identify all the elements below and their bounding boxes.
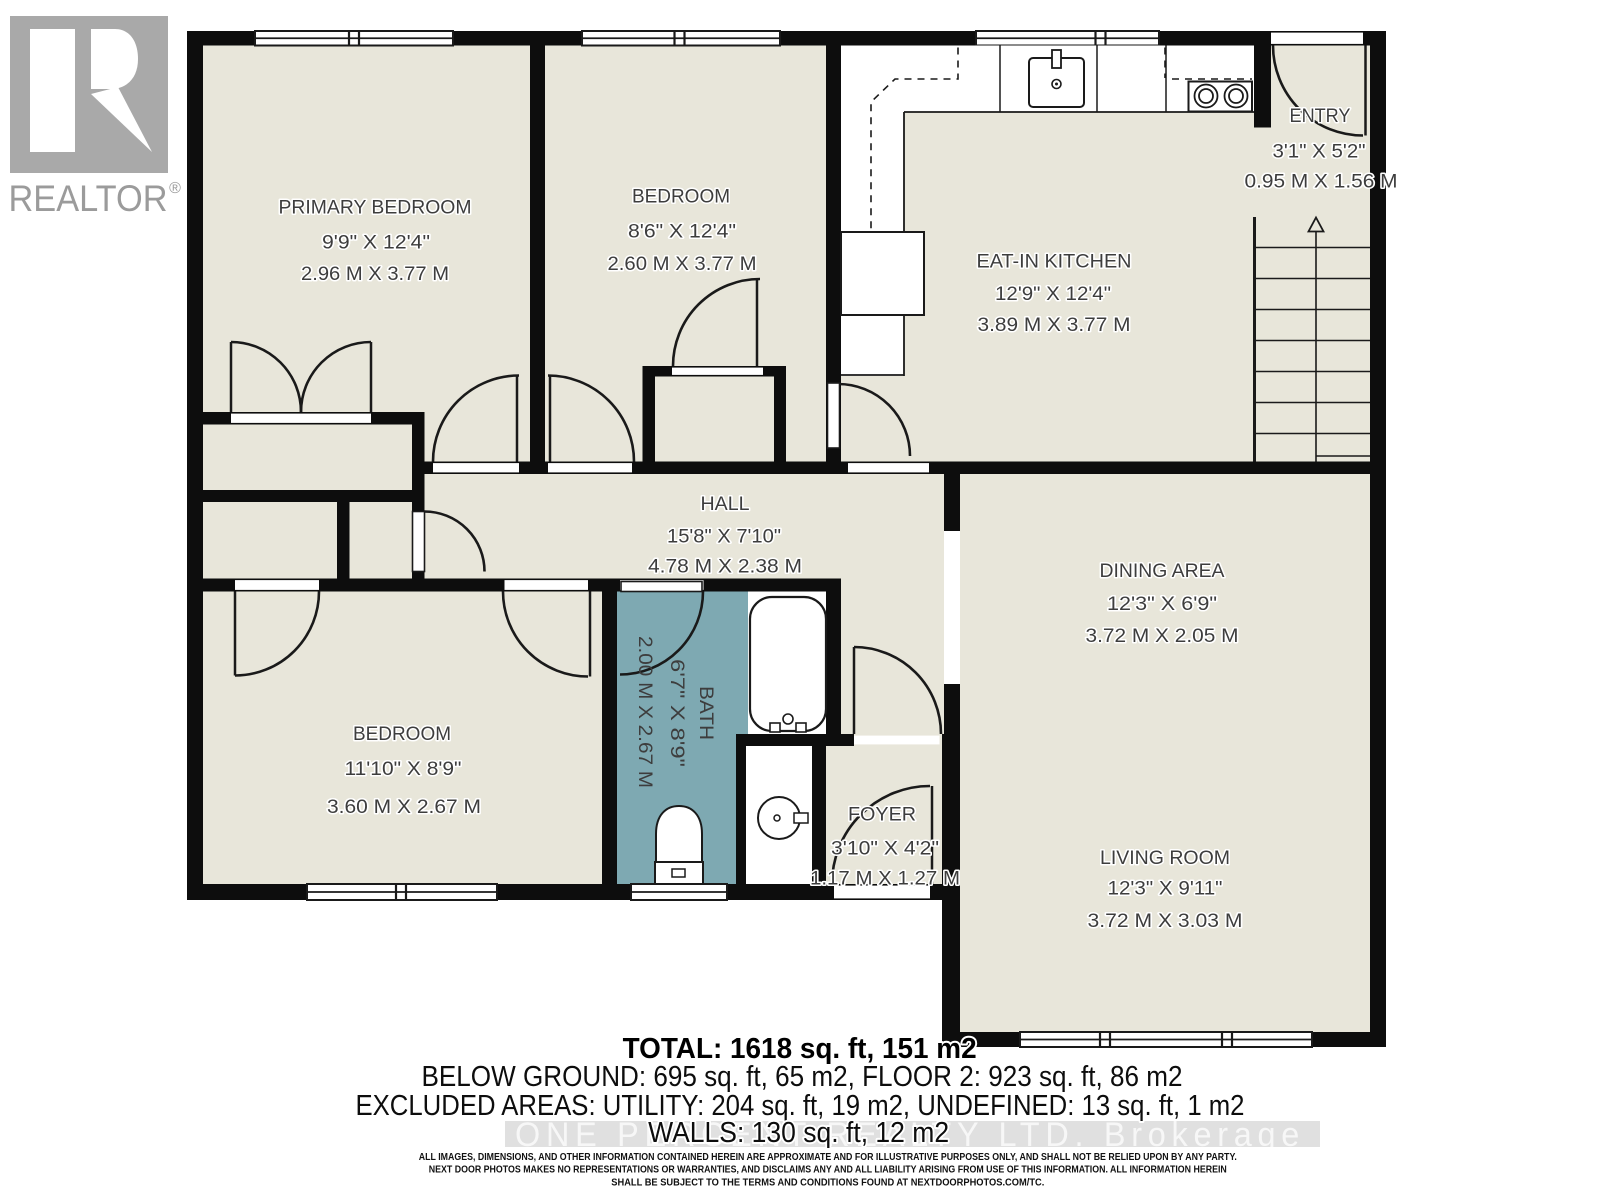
svg-text:3'10" X 4'2": 3'10" X 4'2" (831, 839, 939, 860)
svg-text:12'9" X 12'4": 12'9" X 12'4" (995, 284, 1111, 305)
svg-text:8'6" X 12'4": 8'6" X 12'4" (628, 222, 736, 243)
svg-text:12'3" X 6'9": 12'3" X 6'9" (1107, 594, 1217, 615)
svg-text:1.17 M X 1.27 M: 1.17 M X 1.27 M (810, 869, 960, 890)
svg-text:LIVING ROOM: LIVING ROOM (1100, 848, 1230, 869)
svg-text:2.60 M X 3.77 M: 2.60 M X 3.77 M (608, 254, 757, 275)
svg-text:ALL IMAGES, DIMENSIONS, AND OT: ALL IMAGES, DIMENSIONS, AND OTHER INFORM… (419, 1152, 1237, 1163)
svg-text:2.00 M X 2.67 M: 2.00 M X 2.67 M (634, 636, 655, 788)
svg-text:BATH: BATH (695, 686, 716, 740)
svg-text:SHALL BE SUBJECT TO THE TERMS: SHALL BE SUBJECT TO THE TERMS AND CONDIT… (611, 1178, 1044, 1189)
svg-text:HALL: HALL (701, 494, 750, 515)
svg-text:15'8" X 7'10": 15'8" X 7'10" (667, 527, 781, 548)
svg-text:BEDROOM: BEDROOM (632, 187, 730, 208)
svg-text:3.89 M X 3.77 M: 3.89 M X 3.77 M (978, 315, 1131, 336)
svg-text:3.72 M X 3.03 M: 3.72 M X 3.03 M (1088, 911, 1243, 932)
svg-text:6'7" X 8'9": 6'7" X 8'9" (666, 659, 687, 767)
svg-text:2.96 M X 3.77 M: 2.96 M X 3.77 M (301, 264, 449, 285)
svg-text:3'1" X 5'2": 3'1" X 5'2" (1273, 142, 1366, 163)
svg-text:REALTOR: REALTOR (9, 178, 168, 219)
svg-text:3.72 M X 2.05 M: 3.72 M X 2.05 M (1086, 626, 1239, 647)
svg-text:BEDROOM: BEDROOM (353, 724, 451, 745)
svg-text:®: ® (169, 180, 181, 197)
svg-text:11'10" X 8'9": 11'10" X 8'9" (345, 759, 462, 780)
svg-text:9'9" X 12'4": 9'9" X 12'4" (322, 233, 430, 254)
svg-text:4.78 M X 2.38 M: 4.78 M X 2.38 M (648, 557, 802, 578)
svg-text:BELOW GROUND: 695 sq. ft, 65 m: BELOW GROUND: 695 sq. ft, 65 m2, FLOOR 2… (422, 1061, 1183, 1093)
svg-text:ENTRY: ENTRY (1290, 106, 1351, 127)
svg-text:NEXT DOOR PHOTOS MAKES NO REPR: NEXT DOOR PHOTOS MAKES NO REPRESENTATION… (429, 1165, 1227, 1176)
svg-text:EAT-IN KITCHEN: EAT-IN KITCHEN (977, 252, 1132, 273)
svg-text:12'3" X 9'11": 12'3" X 9'11" (1108, 879, 1223, 900)
svg-text:FOYER: FOYER (848, 805, 916, 826)
svg-text:3.60 M X 2.67 M: 3.60 M X 2.67 M (327, 797, 481, 818)
svg-text:WALLS: 130 sq. ft, 12 m2: WALLS: 130 sq. ft, 12 m2 (648, 1117, 949, 1149)
svg-text:DINING AREA: DINING AREA (1100, 561, 1225, 582)
svg-text:PRIMARY BEDROOM: PRIMARY BEDROOM (279, 198, 472, 219)
svg-text:0.95 M X 1.56 M: 0.95 M X 1.56 M (1245, 172, 1398, 193)
